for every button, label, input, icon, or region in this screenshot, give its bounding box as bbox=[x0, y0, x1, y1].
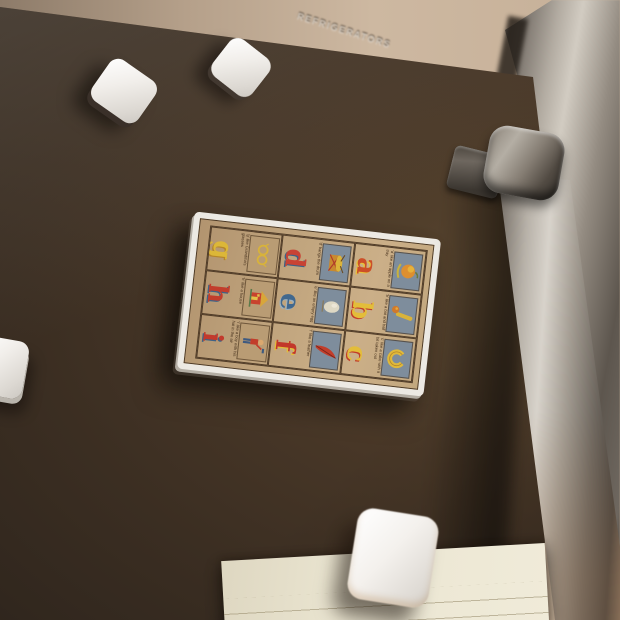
square-magnet-bottom bbox=[345, 506, 440, 610]
cell-letter-h: h bbox=[202, 273, 233, 315]
bat-ball-icon bbox=[386, 296, 417, 334]
card-cell-c: 'c' like a cake with a bit taken outc bbox=[340, 330, 417, 382]
illustration-panel-h bbox=[242, 278, 276, 318]
cell-letter-g: g bbox=[207, 229, 238, 271]
glasses-icon bbox=[248, 236, 279, 274]
drum-icon bbox=[320, 244, 351, 282]
cell-letter-b: b bbox=[346, 289, 377, 331]
cell-letter-f: f bbox=[269, 325, 300, 367]
cell-letter-i: i bbox=[197, 316, 228, 358]
illustration-panel-f bbox=[308, 330, 342, 370]
apple-icon bbox=[391, 252, 422, 290]
refrigerator-scene: REFRIGERATORS 'a' like an apple on a tra… bbox=[0, 0, 620, 620]
feather-icon bbox=[310, 331, 341, 369]
illustration-panel-c bbox=[380, 338, 414, 378]
cell-letter-d: d bbox=[279, 237, 310, 279]
cell-letter-a: a bbox=[351, 245, 382, 287]
illustration-panel-d bbox=[318, 243, 352, 283]
alphabet-card-paper: 'a' like an apple on a traya'b' like a b… bbox=[183, 218, 434, 390]
boy-icon bbox=[238, 323, 269, 361]
illustration-panel-g bbox=[247, 234, 281, 274]
cell-letter-c: c bbox=[341, 333, 372, 375]
card-cell-f: 'f' like a featherf bbox=[268, 322, 345, 374]
handle-mount-cap bbox=[481, 123, 568, 203]
card-cell-i: 'i' like a boy with his hat in the airi bbox=[196, 314, 273, 366]
alphabet-card-magnet: 'a' like an apple on a traya'b' like a b… bbox=[177, 211, 441, 396]
illustration-panel-a bbox=[390, 251, 424, 291]
cell-letter-e: e bbox=[274, 281, 305, 323]
illustration-panel-b bbox=[385, 295, 419, 335]
house-icon bbox=[243, 279, 274, 317]
illustration-panel-i bbox=[237, 322, 271, 362]
cake-icon bbox=[381, 339, 412, 377]
egg-icon bbox=[315, 287, 346, 325]
alphabet-grid: 'a' like an apple on a traya'b' like a b… bbox=[195, 225, 428, 383]
alphabet-chart: 'a' like an apple on a traya'b' like a b… bbox=[183, 218, 434, 390]
illustration-panel-e bbox=[313, 286, 347, 326]
